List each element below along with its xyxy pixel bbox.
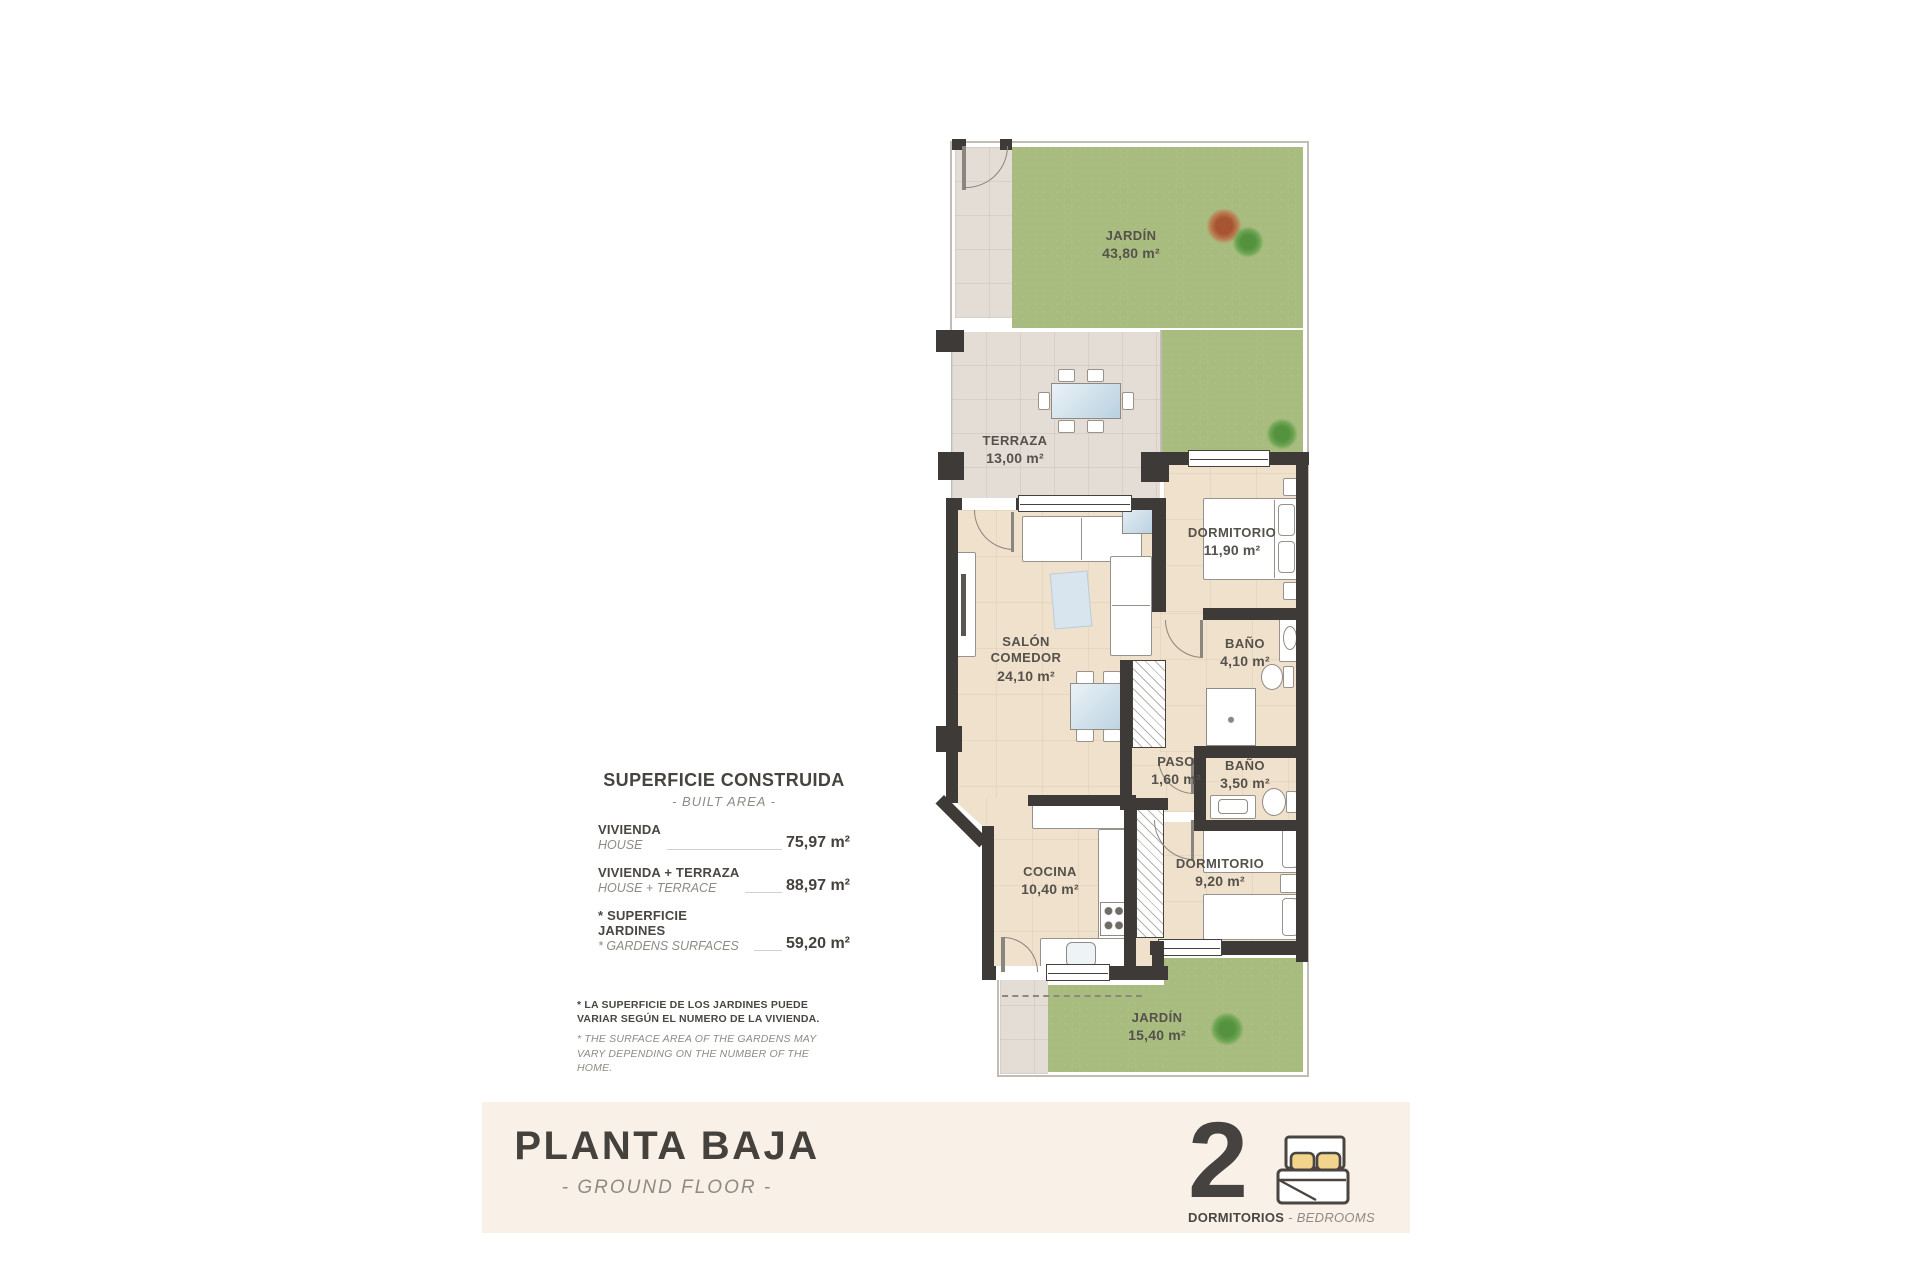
row-label-en: * GARDENS SURFACES xyxy=(598,939,748,953)
bush-icon xyxy=(1210,1012,1244,1046)
wall-segment xyxy=(1194,820,1308,831)
room-name: DORMITORIO xyxy=(1167,525,1297,541)
plot-boundary xyxy=(1046,1075,1309,1077)
chair xyxy=(1087,369,1104,382)
wall-segment xyxy=(982,826,994,978)
room-area: 13,00 m² xyxy=(965,449,1065,467)
room-label-dormitorio2: DORMITORIO 9,20 m² xyxy=(1155,856,1285,890)
room-area: 9,20 m² xyxy=(1155,872,1285,890)
chair xyxy=(1103,729,1121,742)
room-area: 3,50 m² xyxy=(1202,774,1288,792)
room-area: 10,40 m² xyxy=(1000,880,1100,898)
room-label-bano1: BAÑO 4,10 m² xyxy=(1195,636,1295,670)
wall-segment xyxy=(1152,941,1164,980)
tv-unit xyxy=(956,552,976,657)
row-value: 75,97 m² xyxy=(786,834,850,852)
bedrooms-label-es: DORMITORIOS xyxy=(1188,1210,1284,1225)
row-value: 88,97 m² xyxy=(786,877,850,895)
room-name: JARDÍN xyxy=(1081,228,1181,244)
built-area-row: * SUPERFICIE JARDINES * GARDENS SURFACES… xyxy=(598,908,850,953)
bed-icon xyxy=(1260,1134,1360,1213)
window xyxy=(1158,939,1222,956)
room-area: 11,90 m² xyxy=(1167,541,1297,559)
sink xyxy=(1218,799,1248,814)
chair xyxy=(1076,671,1094,684)
plot-boundary xyxy=(997,973,999,1077)
room-label-jardin-bottom: JARDÍN 15,40 m² xyxy=(1107,1010,1207,1044)
shower xyxy=(1206,688,1256,746)
plot-boundary xyxy=(997,1075,1048,1077)
built-area-row: VIVIENDA HOUSE 75,97 m² xyxy=(598,822,850,852)
built-area-row: VIVIENDA + TERRAZA HOUSE + TERRACE 88,97… xyxy=(598,865,850,895)
wall-segment xyxy=(1152,498,1166,612)
rug xyxy=(1050,570,1093,629)
tv xyxy=(961,574,966,636)
window xyxy=(1188,450,1270,467)
wall-pier xyxy=(936,330,964,352)
bedrooms-label-en: BEDROOMS xyxy=(1297,1210,1375,1225)
floor-title: PLANTA BAJA xyxy=(492,1124,842,1169)
row-label-es: VIVIENDA xyxy=(598,822,661,837)
wall-segment xyxy=(1124,795,1136,978)
floor-title-block: PLANTA BAJA - GROUND FLOOR - xyxy=(492,1124,842,1199)
wall-segment xyxy=(1296,452,1308,962)
window xyxy=(1018,495,1132,512)
chair xyxy=(1038,392,1050,410)
bedrooms-separator: - xyxy=(1284,1210,1296,1225)
plant-icon xyxy=(1232,226,1264,258)
room-area: 24,10 m² xyxy=(976,667,1076,685)
door-opening xyxy=(962,498,1016,510)
bedrooms-count: 2 xyxy=(1188,1110,1248,1209)
room-name: SALÓN COMEDOR xyxy=(976,634,1076,667)
room-name: BAÑO xyxy=(1202,758,1288,774)
room-label-salon: SALÓN COMEDOR 24,10 m² xyxy=(976,634,1076,685)
leader-line xyxy=(667,849,782,850)
chair xyxy=(1058,369,1075,382)
room-label-jardin-top: JARDÍN 43,80 m² xyxy=(1081,228,1181,262)
chair xyxy=(1058,420,1075,433)
wall-pier xyxy=(936,726,962,752)
wall-pier xyxy=(938,452,964,480)
chair xyxy=(1122,392,1134,410)
sofa-cushion-line xyxy=(1112,605,1150,606)
room-label-dormitorio1: DORMITORIO 11,90 m² xyxy=(1167,525,1297,559)
row-label-en: HOUSE + TERRACE xyxy=(598,881,739,895)
room-label-terraza: TERRAZA 13,00 m² xyxy=(965,433,1065,467)
room-label-cocina: COCINA 10,40 m² xyxy=(1000,864,1100,898)
footer-band: PLANTA BAJA - GROUND FLOOR - 2 DORMITORI… xyxy=(482,1102,1410,1233)
stove xyxy=(1100,902,1127,936)
room-name: JARDÍN xyxy=(1107,1010,1207,1026)
room-name: COCINA xyxy=(1000,864,1100,880)
plot-boundary xyxy=(950,141,952,333)
chair xyxy=(1087,420,1104,433)
floor-plan-page: JARDÍN 43,80 m² TERRAZA 13,00 m² SALÓN C… xyxy=(0,0,1920,1280)
chair xyxy=(1103,671,1121,684)
window xyxy=(1046,964,1110,981)
wall-pier xyxy=(1141,452,1169,482)
room-area: 15,40 m² xyxy=(1107,1026,1207,1044)
gardens-footnote: * LA SUPERFICIE DE LOS JARDINES PUEDE VA… xyxy=(577,998,833,1075)
wall-segment xyxy=(1203,608,1308,620)
room-name: BAÑO xyxy=(1195,636,1295,652)
pavement-bottom xyxy=(1000,975,1048,1074)
chaise-sofa xyxy=(1110,556,1152,656)
leader-line xyxy=(745,892,782,893)
room-label-bano2: BAÑO 3,50 m² xyxy=(1202,758,1288,792)
leader-line xyxy=(754,950,782,951)
row-label-es: VIVIENDA + TERRAZA xyxy=(598,865,739,880)
floor-subtitle: - GROUND FLOOR - xyxy=(492,1177,842,1199)
wardrobe xyxy=(1132,660,1166,748)
footnote-es: * LA SUPERFICIE DE LOS JARDINES PUEDE VA… xyxy=(577,998,833,1026)
built-area-panel: SUPERFICIE CONSTRUIDA - BUILT AREA - VIV… xyxy=(598,770,850,953)
room-area: 43,80 m² xyxy=(1081,244,1181,262)
wall-segment xyxy=(1028,795,1132,806)
plant-icon xyxy=(1266,418,1298,450)
row-value: 59,20 m² xyxy=(786,935,850,953)
panel-subtitle: - BUILT AREA - xyxy=(598,794,850,809)
room-name: TERRAZA xyxy=(965,433,1065,449)
terrace-table xyxy=(1051,383,1121,419)
footnote-en: * THE SURFACE AREA OF THE GARDENS MAY VA… xyxy=(577,1032,833,1075)
row-label-en: HOUSE xyxy=(598,838,661,852)
panel-title: SUPERFICIE CONSTRUIDA xyxy=(598,770,850,791)
wall-segment xyxy=(1120,660,1132,810)
sofa-cushion-line xyxy=(1081,518,1082,560)
row-label-es: * SUPERFICIE JARDINES xyxy=(598,908,748,938)
door-leaf xyxy=(1191,820,1194,860)
room-name: DORMITORIO xyxy=(1155,856,1285,872)
room-area: 4,10 m² xyxy=(1195,652,1295,670)
wall-segment xyxy=(946,498,958,803)
garden-dashed-boundary xyxy=(1002,995,1142,997)
bedrooms-caption: DORMITORIOS - BEDROOMS xyxy=(1188,1210,1398,1225)
chair xyxy=(1076,729,1094,742)
floor-plan: JARDÍN 43,80 m² TERRAZA 13,00 m² SALÓN C… xyxy=(0,0,1920,1280)
